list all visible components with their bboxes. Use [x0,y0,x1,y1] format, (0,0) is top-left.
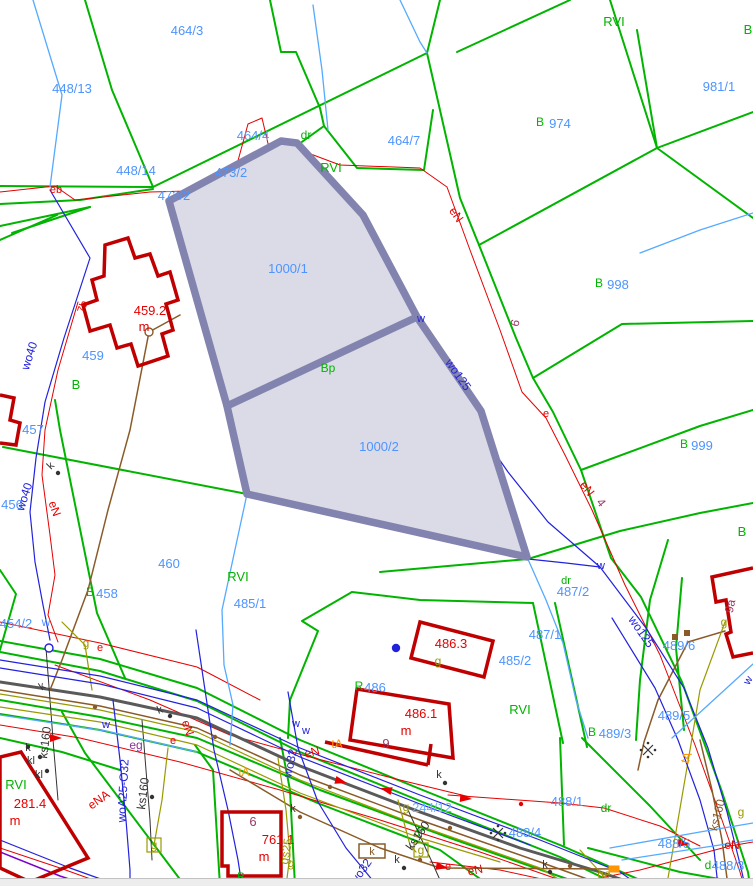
survey-cross-dot [497,825,500,828]
map-label: eN [303,743,321,760]
building-outline [428,744,431,765]
map-label: eNA [85,787,112,812]
map-label: 459.2 [134,303,167,318]
map-label: 486 [364,680,386,695]
map-label: ks160 [36,725,54,759]
building-outline [0,395,20,445]
map-label: e [445,861,451,873]
map-label: dr [301,128,312,142]
map-line-green [533,321,753,378]
map-label: 488/5 [658,836,691,851]
map-label: 489/5 [658,708,691,723]
map-label: k [542,859,548,871]
map-line-green [637,30,657,148]
map-label: B [738,524,747,539]
survey-cross-dot [497,839,500,842]
map-line-green [427,0,440,53]
map-line-green [352,592,533,603]
survey-cross-dot [654,749,657,752]
map-label: eb [50,184,62,196]
map-label: tA [331,737,342,751]
survey-cross-dot [647,742,650,745]
map-label: eN [466,862,484,879]
map-line-green [560,738,564,845]
map-line-blue [30,190,90,640]
map-line-green [581,410,753,470]
map-label: 1000/2 [359,439,399,454]
map-line-green [657,112,753,148]
map-label: eN [577,478,597,499]
brown-dot-marker [93,705,97,709]
map-label: k [290,803,296,815]
map-label: w [416,313,425,325]
brown-dot-marker [298,815,302,819]
map-line-blue [196,630,242,886]
brown-dot-marker [418,858,422,862]
map-label: 974 [549,116,571,131]
map-label: 485/1 [234,596,267,611]
map-label: e [97,642,103,654]
window-bottom-bar [0,878,753,886]
map-line-green [0,189,153,204]
map-label: B [536,115,544,129]
map-label: 486.1 [405,706,438,721]
map-label: 9 [382,736,389,751]
map-label: 6 [249,814,256,829]
map-line-blue [288,692,380,886]
map-line-green [479,148,657,245]
map-label: 459 [82,348,104,363]
map-line-green [533,603,563,743]
map-label: w [41,615,51,629]
map-label: 489/6 [663,638,696,653]
map-label: eN [724,838,739,852]
map-label: Bp [321,361,336,375]
map-line-green [288,592,352,738]
map-label: RVI [5,777,26,792]
map-label: 488/1 [551,794,584,809]
map-label: eN [46,499,64,518]
map-line-green [657,148,753,218]
map-label: R [355,679,364,693]
map-label: B [86,585,94,599]
map-label: 464/3 [171,23,204,38]
map-line-green [479,245,750,886]
map-label: dr [601,801,612,815]
black-dot-marker [548,870,552,874]
brown-dot-marker [568,864,572,868]
map-label: dr [561,575,571,587]
map-line-olive [154,748,168,845]
blue-circle-marker [393,645,400,652]
cadastral-map[interactable]: 464/3448/13448/14473/2472/2464/4464/7981… [0,0,753,886]
map-label: 448/14 [116,163,156,178]
black-dot-marker [402,866,406,870]
map-label: wo125 [625,612,658,650]
map-label: RVI [320,160,341,175]
map-line-green [0,570,16,650]
map-label: kl [27,755,35,767]
map-label: 281.4 [14,796,47,811]
map-label: 488/4 [509,825,542,840]
map-line-lightblue [640,213,753,253]
black-dot-marker [443,781,447,785]
map-line-lightblue [400,0,427,53]
map-label: 244/12 [412,800,452,815]
map-line-lightblue [672,664,753,738]
map-label: RVI [227,569,248,584]
building-outline [83,238,178,366]
map-label: 488/3 [712,858,745,873]
survey-cross-dot [647,756,650,759]
map-label: 4 [594,496,609,510]
map-label: 464/7 [388,133,421,148]
survey-cross-marker [643,745,653,755]
black-dot-marker [45,769,49,773]
map-label: g [83,636,90,650]
map-label: tA [678,750,695,765]
map-label: 1000/1 [268,261,308,276]
map-label: B [744,22,753,37]
map-line-gray [0,682,640,886]
map-label: m [401,723,412,738]
survey-cross-dot [490,832,493,835]
map-label: m [10,813,21,828]
map-label: 458 [96,586,118,601]
blue-circle-marker [45,644,53,652]
map-label: k [394,854,400,866]
map-label: k [25,742,31,754]
map-label: w [101,719,110,731]
map-label: 999 [691,438,713,453]
map-label: 454/2 [0,616,32,631]
black-dot-marker [56,471,60,475]
map-label: g [403,800,410,814]
map-label: B [72,377,81,392]
map-label: 486.3 [435,636,468,651]
map-label: wo40 [18,340,41,373]
map-label: 6 [508,318,523,328]
map-label: w [301,725,310,737]
map-line-green [195,745,220,886]
map-label: g [721,615,728,629]
map-label: woA25-O32 [114,758,131,823]
map-line-brown [50,315,180,690]
map-line-green [0,186,153,187]
map-line-green [85,0,153,187]
square-marker [684,630,690,636]
survey-cross-dot [640,749,643,752]
map-line-green [380,559,528,572]
map-label: 998 [607,277,629,292]
map-label: RVI [509,702,530,717]
map-label: B [595,276,603,290]
map-label: 464/4 [237,128,270,143]
map-label: 487/1 [529,627,562,642]
black-dot-marker [168,714,172,718]
map-label: w [291,718,300,730]
map-label: 460 [158,556,180,571]
map-label: k [37,680,49,693]
map-label: w [596,560,605,572]
map-line-green [3,447,247,494]
map-viewport[interactable]: 464/3448/13448/14473/2472/2464/4464/7981… [0,0,753,886]
map-label: g [151,838,158,852]
map-label: 472/2 [158,188,191,203]
map-label: m [259,849,270,864]
map-line-green [528,503,753,559]
black-dot-marker [150,795,154,799]
map-label: e [543,408,549,420]
map-label: 489/3 [599,726,632,741]
direction-arrow [460,794,473,803]
brown-dot-marker [328,785,332,789]
map-label: B [680,437,688,451]
map-line-green [0,207,90,226]
map-label: B [588,725,596,739]
map-label: eg [129,738,142,752]
map-label: 473/2 [215,165,248,180]
map-label: g [435,654,442,668]
map-label: d [705,858,712,872]
map-label: w [741,674,753,688]
map-label: 981/1 [703,79,736,94]
map-label: k [436,769,442,781]
direction-arrow [334,776,348,787]
map-label: k [45,459,58,472]
map-label: e [170,735,176,747]
brown-dot-marker [213,735,217,739]
map-label: kl [35,769,43,781]
map-line-green [55,400,125,678]
map-label: 448/13 [52,81,92,96]
map-label: 9a [722,598,739,614]
brown-dot-marker [448,826,452,830]
map-line-blue [528,559,600,567]
map-label: k [369,846,375,858]
red-dot-marker [519,802,523,806]
map-line-green [0,215,57,240]
map-label: g [738,805,745,819]
map-label: 485/2 [499,653,532,668]
map-label: tA [238,765,249,779]
map-line-green [457,0,570,52]
map-label: RVI [603,14,624,29]
map-label: m [139,319,150,334]
survey-cross-dot [504,832,507,835]
map-label: 457 [22,422,44,437]
